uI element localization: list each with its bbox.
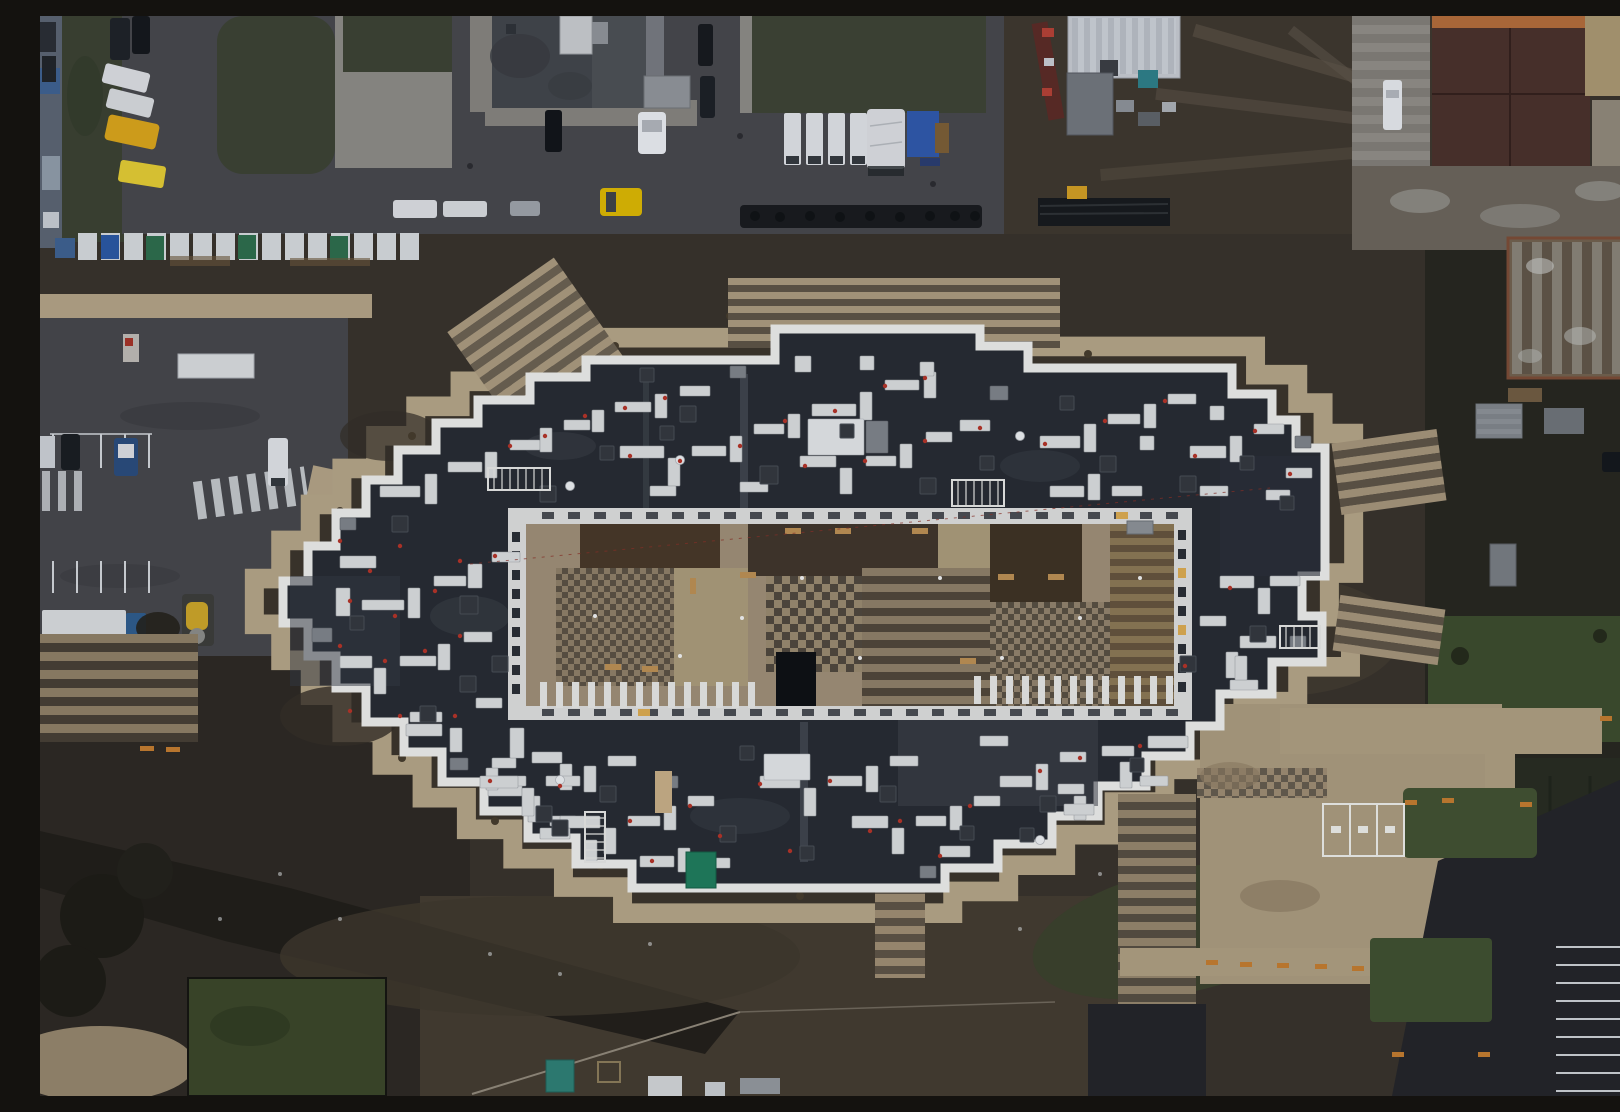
aerial-photograph: [40, 16, 1620, 1096]
scene-canvas: [40, 16, 1620, 1096]
color-grade: [40, 16, 1620, 1096]
photo-grade-overlay: [40, 16, 1620, 1096]
